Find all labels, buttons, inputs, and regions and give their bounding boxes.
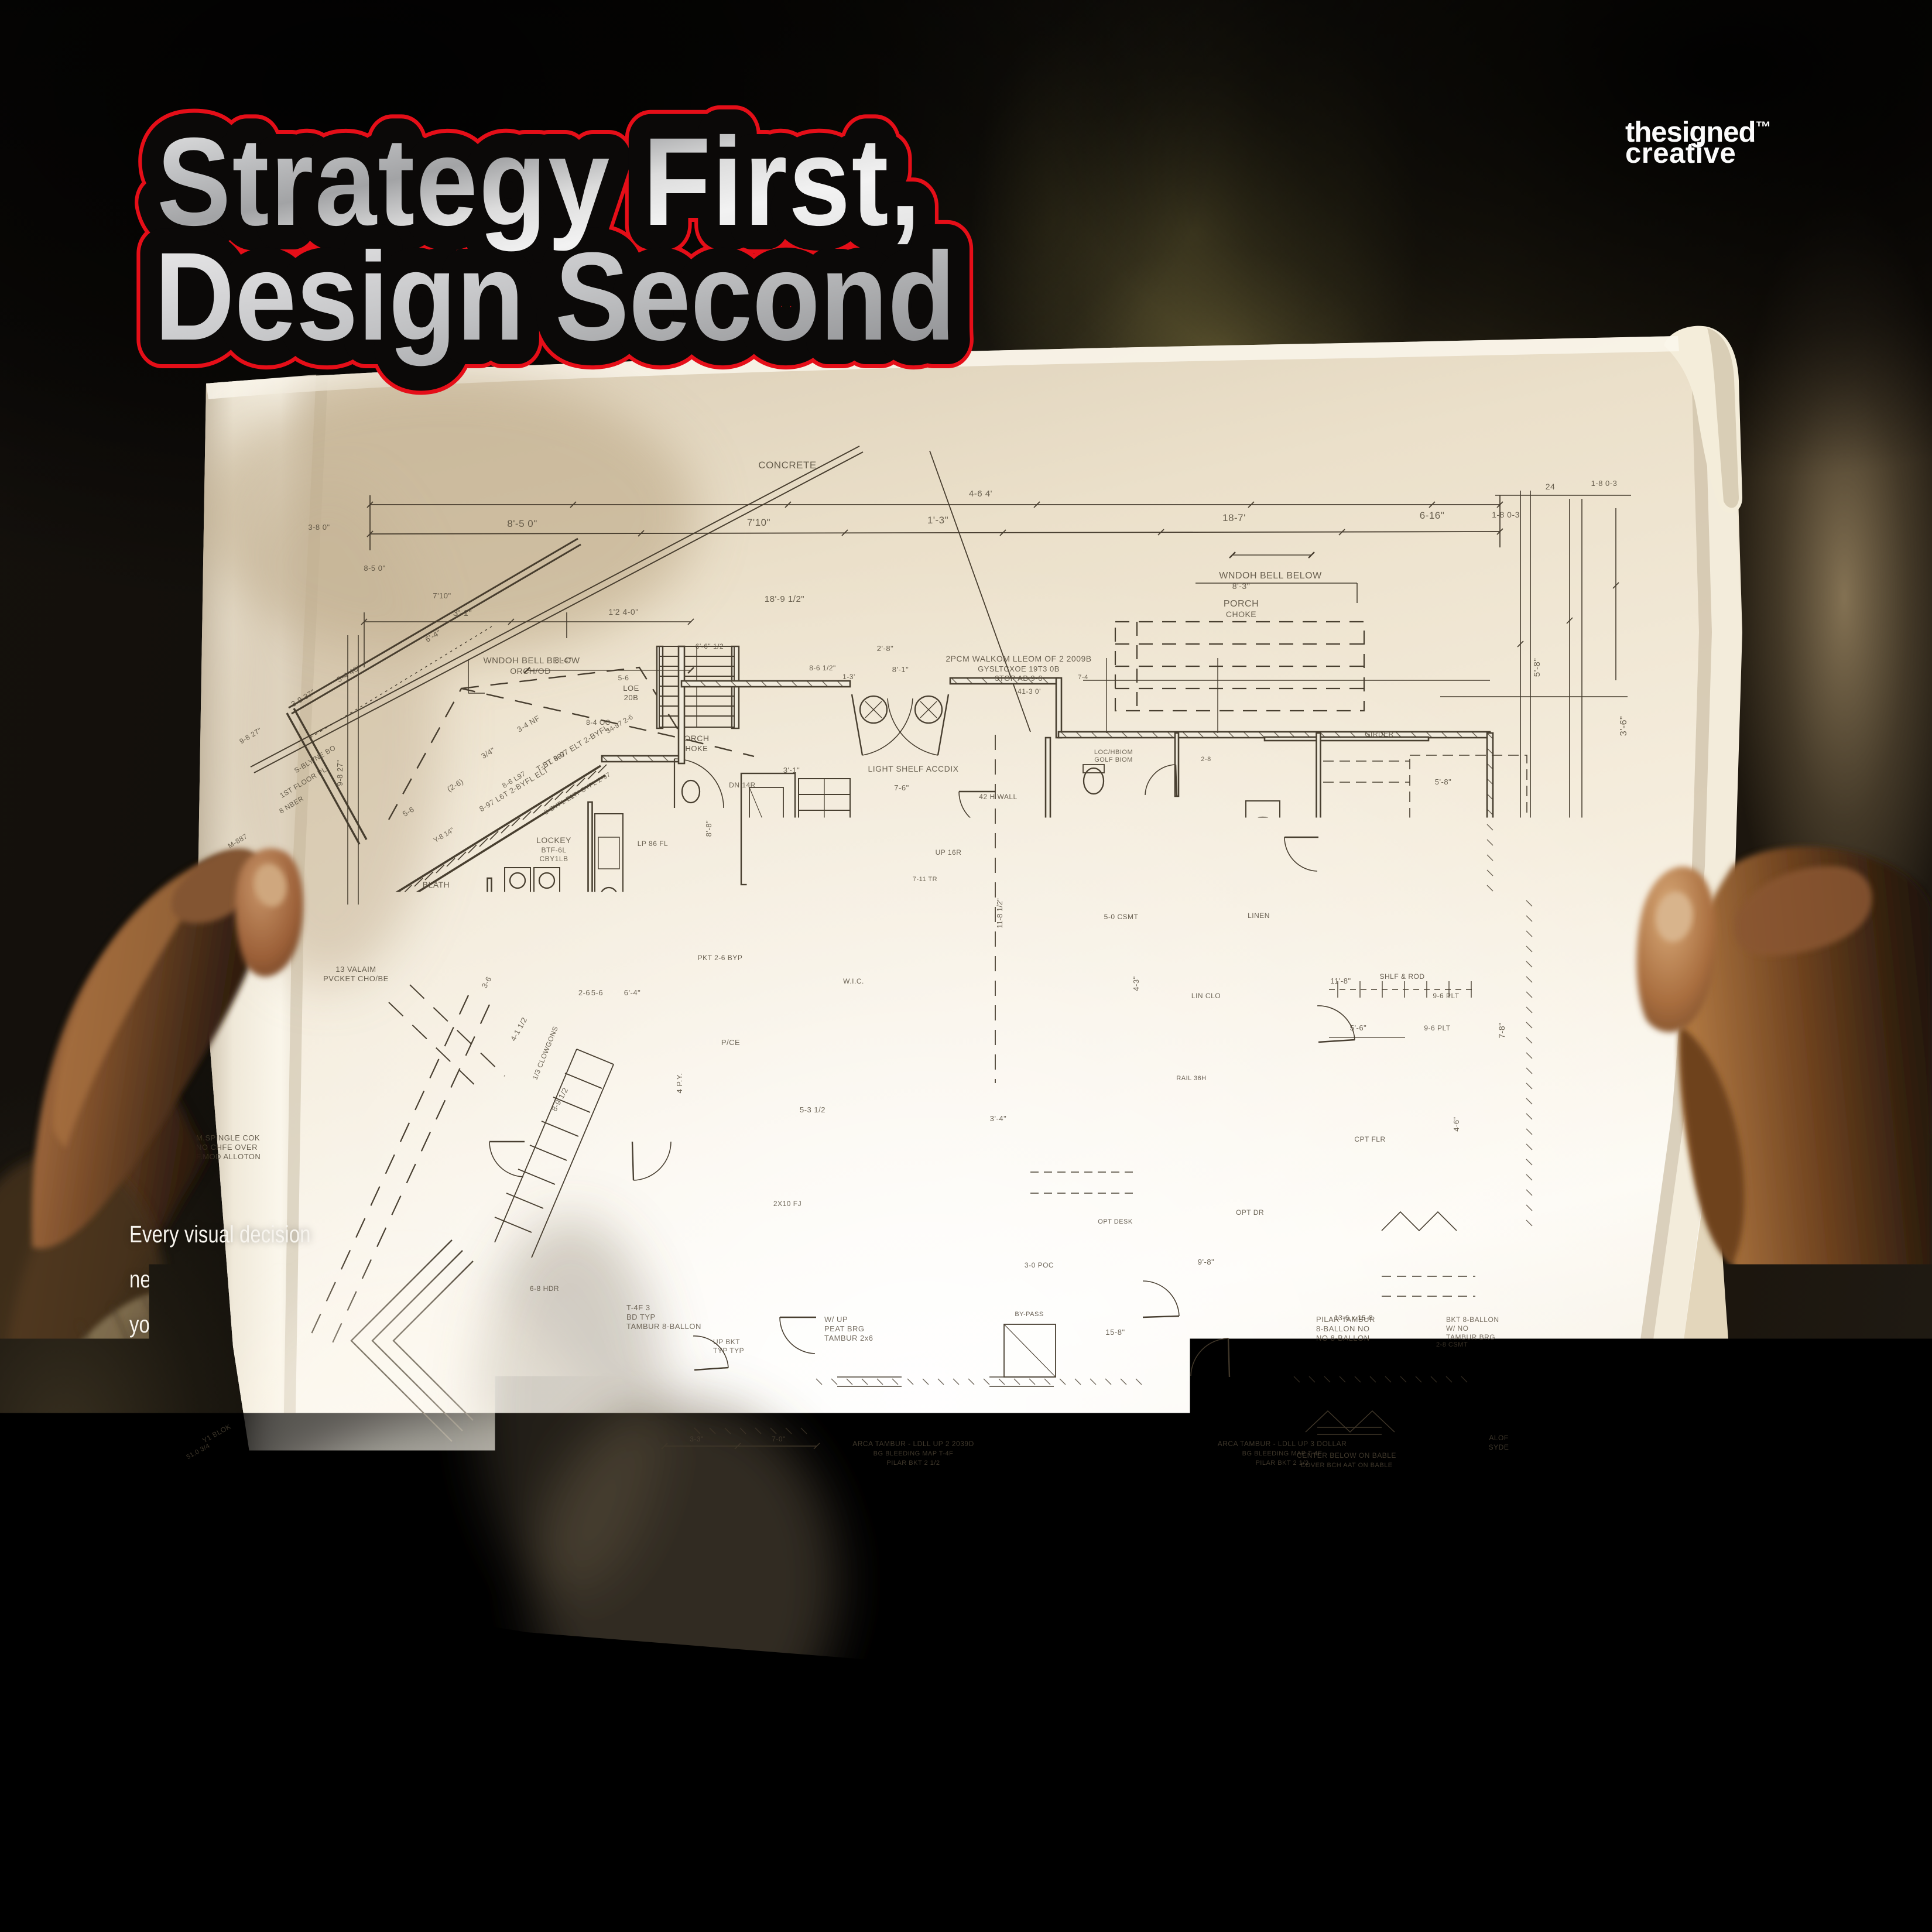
svg-text:Design Second: Design Second (155, 226, 955, 366)
